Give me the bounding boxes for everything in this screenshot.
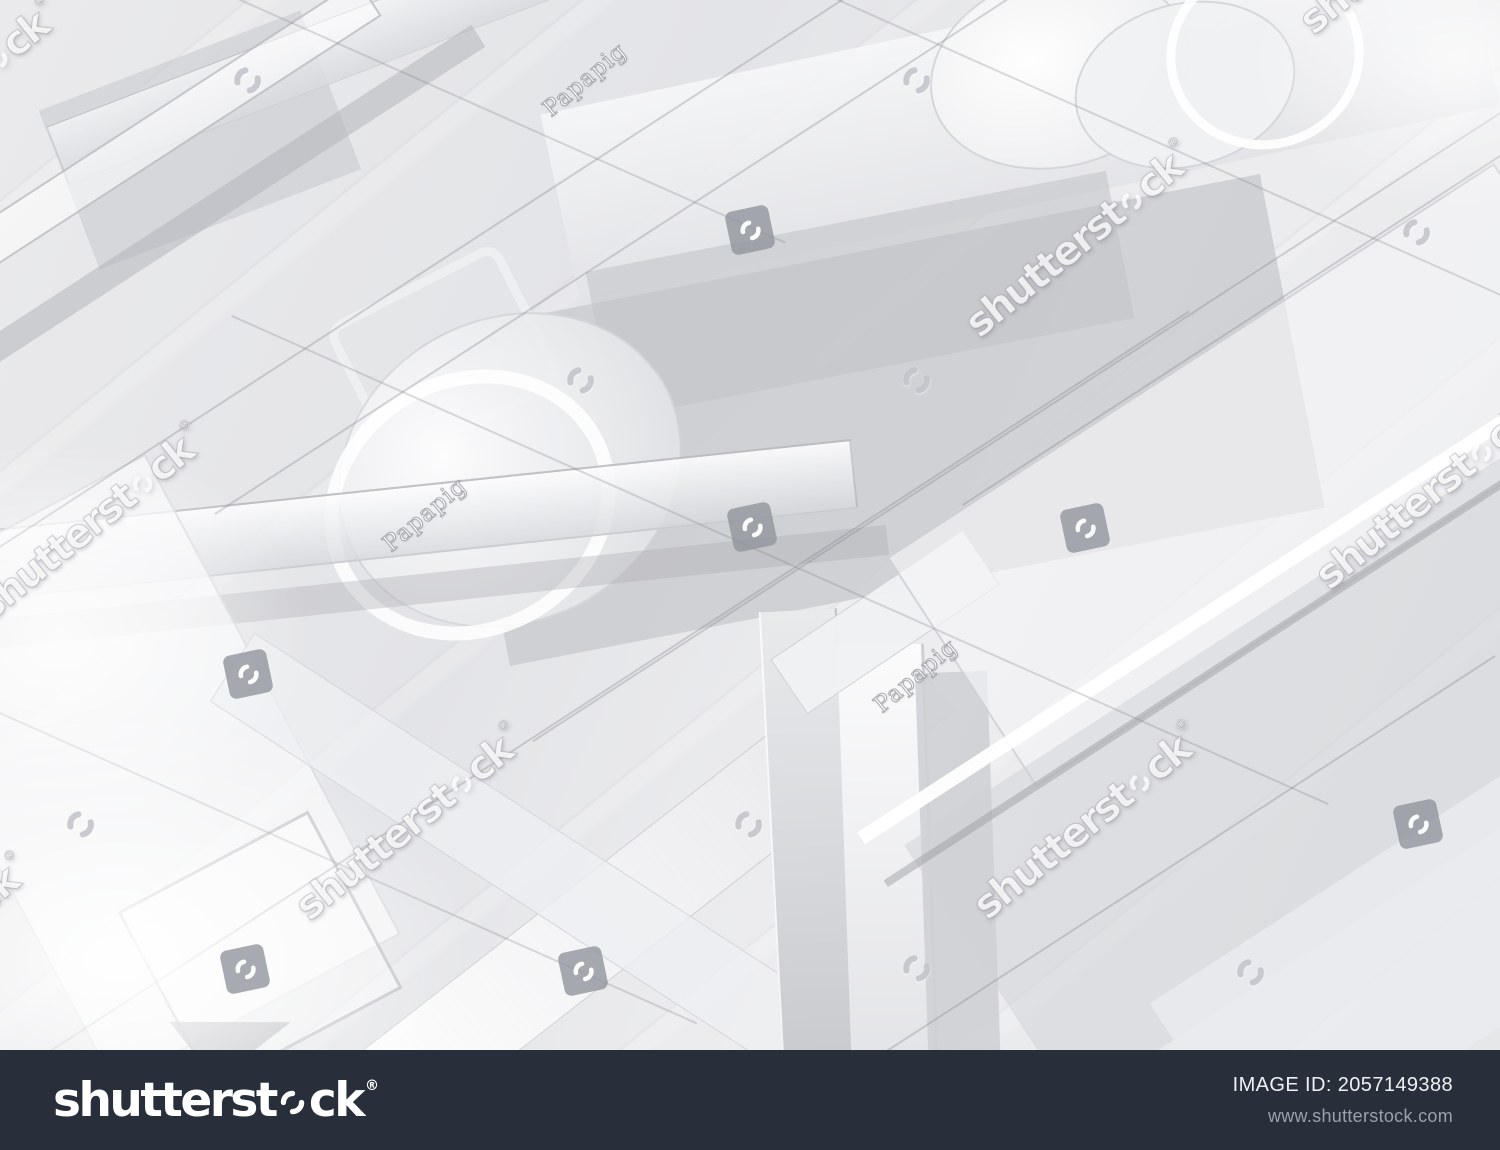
watermark-icon-outline	[54, 798, 106, 850]
shutterstock-logo: shutterst ck ®	[53, 1077, 379, 1124]
watermark-author-text: Papapig	[869, 634, 963, 718]
watermark-icon-outline	[890, 354, 942, 406]
image-id: IMAGE ID: 2057149388	[1233, 1074, 1453, 1097]
watermark-brand-text: shutterstck®	[0, 0, 70, 205]
watermark-icon-outline	[221, 54, 273, 106]
watermark-icon-badge	[1392, 798, 1444, 850]
logo-text-end: ck	[309, 1077, 363, 1124]
image-id-label: IMAGE ID:	[1233, 1074, 1332, 1096]
watermark-layer: shutterstck®shutterstck®shutterstck®shut…	[0, 0, 1500, 1050]
stock-photo-preview: shutterstck®shutterstck®shutterstck®shut…	[0, 0, 1500, 1150]
watermark-icon-badge	[219, 943, 271, 995]
watermark-author-text: Papapig	[538, 38, 632, 122]
watermark-icon-outline	[1224, 946, 1276, 998]
watermark-icon-badge	[1059, 502, 1111, 554]
registered-trademark-symbol: ®	[365, 1079, 379, 1093]
shutterstock-arcs-icon	[278, 1088, 307, 1117]
watermark-icon-outline	[890, 942, 942, 994]
website-url: www.shutterstock.com	[1268, 1106, 1453, 1127]
footer-bar: shutterst ck ® IMAGE ID: 2057149388 www.…	[0, 1050, 1500, 1150]
watermark-icon-outline	[722, 798, 774, 850]
image-meta: IMAGE ID: 2057149388 www.shutterstock.co…	[1233, 1074, 1453, 1127]
watermark-brand-text: shutterstck®	[0, 846, 40, 1050]
image-id-value: 2057149388	[1338, 1074, 1453, 1096]
watermark-icon-outline	[554, 354, 606, 406]
watermark-icon-badge	[222, 648, 274, 700]
watermark-icon-outline	[1390, 206, 1442, 258]
watermark-author-text: Papapig	[378, 473, 472, 557]
logo-text-start: shutterst	[53, 1077, 276, 1124]
watermark-brand-text: shutterstck®	[964, 715, 1212, 928]
watermark-icon-badge	[557, 945, 609, 997]
watermark-icon-badge	[726, 501, 778, 553]
watermark-icon-outline	[890, 54, 942, 106]
watermark-brand-text: shutterstck®	[1290, 0, 1500, 44]
watermark-brand-text: shutterstck®	[956, 133, 1204, 346]
watermark-brand-text: shutterstck®	[0, 416, 215, 629]
watermark-icon-badge	[724, 204, 776, 256]
watermark-brand-text: shutterstck®	[286, 716, 534, 929]
watermark-brand-text: shutterstck®	[1306, 385, 1500, 598]
